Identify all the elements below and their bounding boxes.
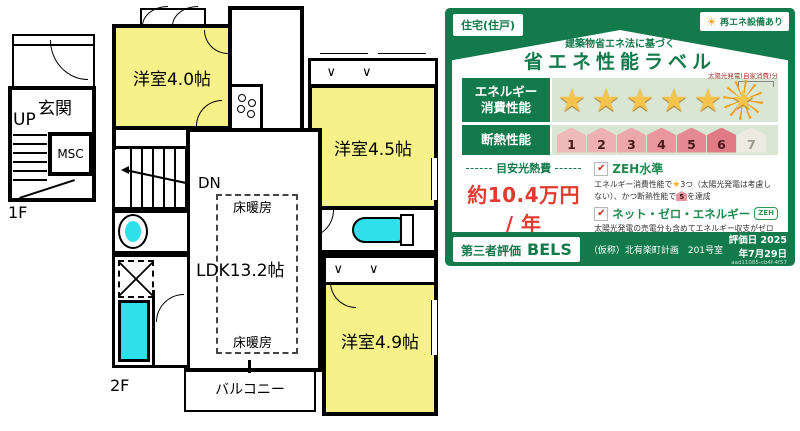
f2-balcony: バルコニー	[184, 368, 316, 412]
window	[431, 158, 438, 200]
f2-kitchen-partition-h	[231, 84, 261, 87]
check-icon: ✔	[594, 162, 608, 176]
f2-closet49: ∨∨	[326, 258, 434, 285]
energy-row-label: エネルギー 消費性能	[462, 78, 550, 122]
zeh-badge-icon: ZEH	[754, 207, 778, 220]
energy-stars: 太陽光発電(自家消費)分 ★★★★★★	[552, 78, 778, 122]
f2-room45: 洋室4.5帖	[308, 84, 438, 210]
f2-balcony-label: バルコニー	[215, 379, 285, 399]
insulation-level-3: 3	[617, 128, 646, 153]
star-icon: ★	[623, 84, 657, 116]
floor-plan: 玄関 UP MSC 1F 洋室4.0帖 ∨∨ 洋室4.5帖 ∨∨	[0, 0, 445, 431]
star-icon: ★	[555, 84, 589, 116]
f2-ldk-label: LDK13.2帖	[196, 256, 285, 281]
f1-msc-label: MSC	[57, 147, 83, 161]
energy-label-card: 住宅(住戸) ☀ 再エネ設備あり 建築物省エネ法に基づく 省エネ性能ラベル エネ…	[445, 8, 795, 266]
stove-burner-icon	[238, 94, 246, 102]
toilet-fixture	[352, 217, 402, 243]
evaluation-date: 評価日 2025年7月29日	[723, 232, 787, 260]
f2-stair-arrow-head	[121, 166, 129, 174]
zeh-section: ✔ ZEH水準 エネルギー消費性能で★3つ（太陽光発電は考慮しない）、かつ断熱性…	[594, 160, 778, 297]
net-zero-label: ネット・ゼロ・エネルギー	[612, 206, 750, 222]
divider	[555, 168, 581, 169]
toilet-tank	[400, 214, 414, 246]
bifold-door-icon: ∨∨	[333, 262, 404, 277]
f1-msc-room: MSC	[48, 132, 93, 176]
f1-entrance-label: 玄関	[38, 94, 72, 119]
check-icon: ✔	[594, 207, 608, 221]
building-type-badge: 住宅(住戸)	[453, 14, 523, 36]
renewable-badge: ☀ 再エネ設備あり	[700, 12, 789, 31]
star-icon: ★	[657, 84, 691, 116]
solar-icon: ☀	[706, 16, 717, 28]
wall-segment	[112, 126, 116, 150]
evaluation-date-block: 評価日 2025年7月29日 aad11085-cb4f-4f57	[723, 232, 787, 266]
insulation-level-5: 5	[677, 128, 706, 153]
f2-room40-label: 洋室4.0帖	[133, 65, 211, 90]
f2-room49: ∨∨ 洋室4.9帖	[322, 254, 438, 416]
solar-self-consumption-note: 太陽光発電(自家消費)分	[708, 70, 778, 80]
stove-burner-icon	[247, 110, 255, 118]
renewable-badge-text: 再エネ設備あり	[720, 15, 783, 28]
f1-floor-label: 1F	[8, 203, 27, 222]
stove-burner-icon	[248, 99, 256, 107]
insulation-level-4: 4	[647, 128, 676, 153]
evaluation-code: aad11085-cb4f-4f57	[723, 260, 787, 266]
zeh-level-note: エネルギー消費性能で★3つ（太陽光発電は考慮しない）、かつ断熱性能で5を達成	[594, 179, 778, 203]
zeh-level-label: ZEH水準	[612, 160, 663, 177]
bifold-door-icon: ∨∨	[326, 65, 397, 80]
washer-space	[118, 260, 154, 298]
f2-stairs	[130, 149, 187, 207]
insulation-level-1: 1	[557, 128, 586, 153]
f2-dn-label: DN	[197, 174, 222, 192]
building-type-text: 住宅(住戸)	[461, 19, 515, 32]
star-icon: ★	[691, 84, 725, 116]
floor-heating-label-bottom: 床暖房	[231, 332, 274, 351]
insulation-level-2: 2	[587, 128, 616, 153]
bathtub	[118, 300, 150, 362]
insulation-levels: 1234567	[552, 125, 778, 155]
evaluation-label: 第三者評価	[461, 242, 521, 259]
f1-stairs	[13, 134, 47, 182]
floor-heating-label-top: 床暖房	[231, 197, 274, 216]
evaluation-band: 第三者評価 BELS （仮称）北有楽町計画 201号室 評価日 2025年7月2…	[445, 232, 795, 266]
project-name: （仮称）北有楽町計画 201号室	[589, 243, 723, 256]
stove-burner-icon	[237, 105, 245, 113]
f1-up-label: UP	[13, 110, 36, 130]
bels-box: 第三者評価 BELS	[453, 237, 580, 262]
solar-star-icon: ★	[725, 82, 761, 118]
bels-logo: BELS	[527, 240, 572, 259]
cost-value: 約10.4万円 / 年	[462, 179, 585, 237]
cost-section: 目安光熱費 約10.4万円 / 年 目安光熱費は、住宅の省エネ性能と全国一律の燃…	[462, 160, 585, 297]
toilet-fixture	[118, 214, 148, 249]
cost-heading: 目安光熱費	[496, 160, 551, 176]
insulation-row-label: 断熱性能	[462, 125, 550, 155]
label-panel: 建築物省エネ法に基づく 省エネ性能ラベル エネルギー 消費性能 太陽光発電(自家…	[452, 30, 788, 232]
insulation-level-5-icon: 5	[676, 191, 687, 201]
balcony-divider	[248, 360, 251, 373]
window	[431, 300, 438, 355]
f2-room49-label: 洋室4.9帖	[341, 328, 419, 353]
label-subtitle: 建築物省エネ法に基づく	[452, 39, 788, 51]
star-icon: ★	[589, 84, 623, 116]
f2-floor-label: 2F	[110, 376, 129, 395]
divider	[466, 168, 492, 169]
f2-bath-partition	[152, 290, 155, 368]
insulation-level-6: 6	[707, 128, 736, 153]
insulation-level-7: 7	[737, 128, 766, 153]
f2-room45-label: 洋室4.5帖	[334, 135, 412, 160]
